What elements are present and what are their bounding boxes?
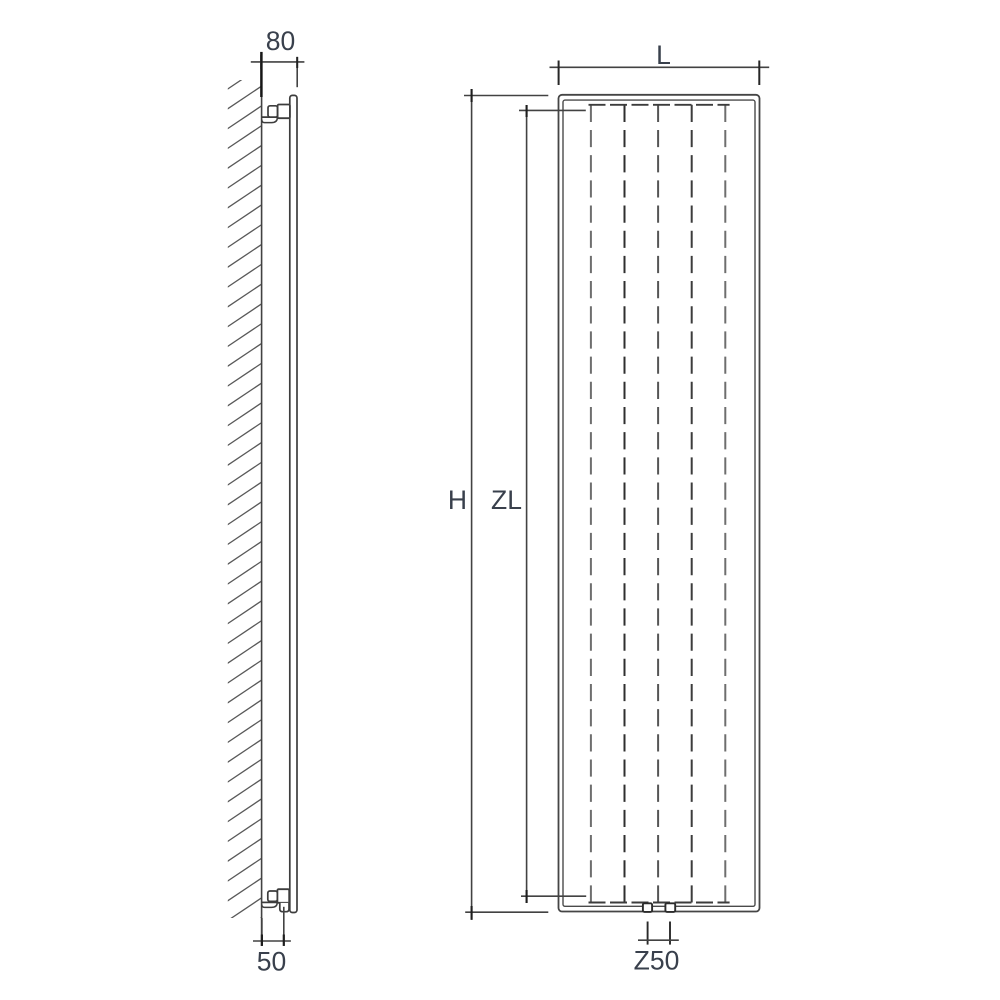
svg-text:H: H <box>448 485 467 515</box>
svg-text:50: 50 <box>257 946 286 976</box>
svg-text:Z50: Z50 <box>634 946 680 976</box>
svg-text:ZL: ZL <box>491 485 522 515</box>
svg-text:80: 80 <box>266 26 295 56</box>
svg-text:L: L <box>656 40 671 70</box>
